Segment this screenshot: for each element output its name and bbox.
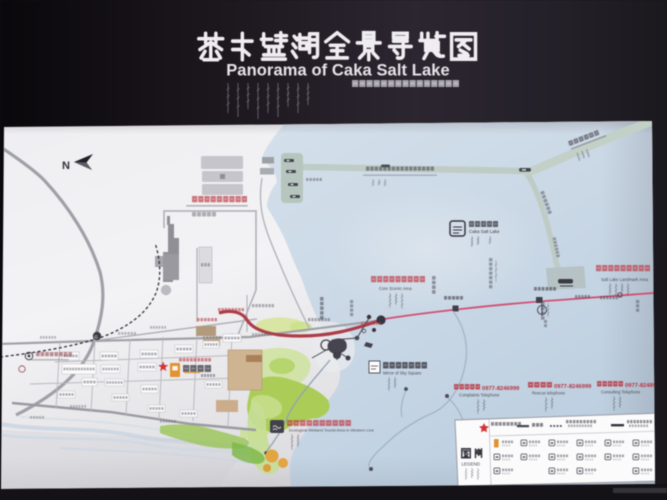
svg-text:LEGEND: LEGEND	[462, 462, 481, 467]
svg-text:Core Scenic Area: Core Scenic Area	[379, 286, 412, 291]
svg-text:Mirror of Sky Square: Mirror of Sky Square	[383, 371, 422, 376]
svg-text:0977-8246999: 0977-8246999	[554, 384, 592, 390]
svg-text:N: N	[62, 160, 70, 172]
svg-text:Consulting Telephone: Consulting Telephone	[601, 390, 641, 395]
svg-text:Rescue telephone: Rescue telephone	[532, 391, 566, 396]
svg-text:Complaints Telephone: Complaints Telephone	[459, 393, 500, 398]
svg-text:0977-8246999: 0977-8246999	[482, 386, 520, 392]
svg-text:Panorama of Caka Salt Lake: Panorama of Caka Salt Lake	[226, 62, 450, 80]
svg-text:Caka Salt Lake: Caka Salt Lake	[469, 229, 500, 234]
svg-text:Salt Lake Landmark Area: Salt Lake Landmark Area	[601, 277, 649, 282]
svg-text:Ecological Wetland Tourist Are: Ecological Wetland Tourist Area in Weste…	[289, 428, 375, 433]
svg-text:G: G	[94, 334, 98, 339]
